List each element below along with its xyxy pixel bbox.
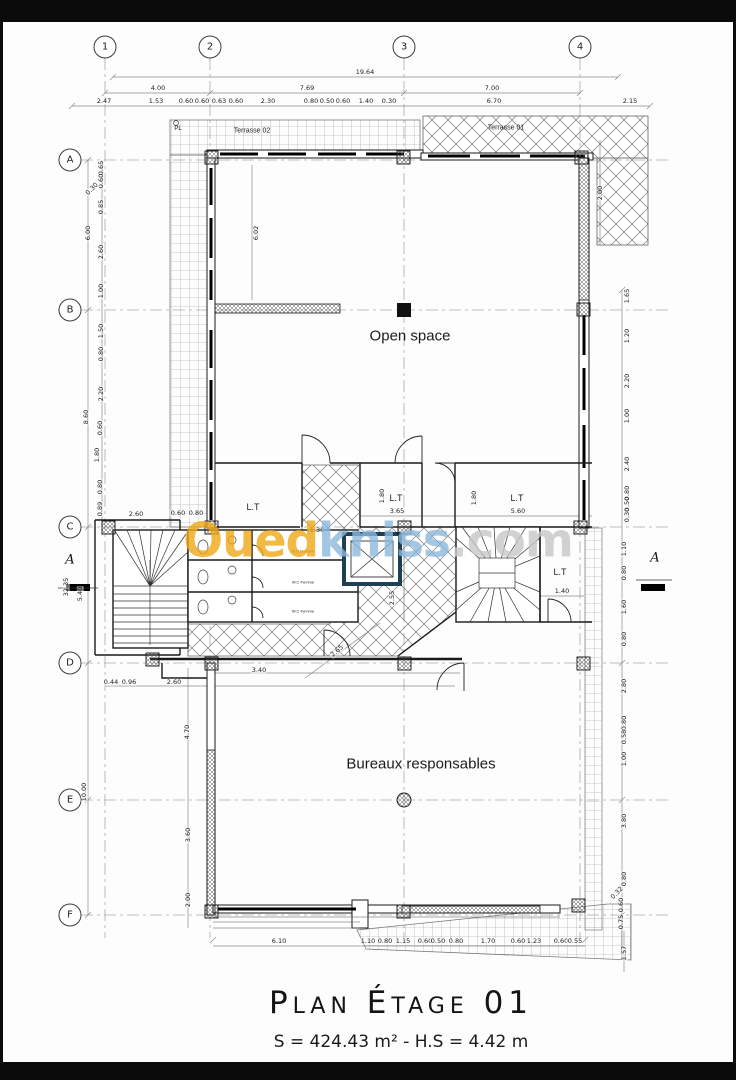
watermark-part1: Oued [183,514,318,569]
plan-subtitle: S = 424.43 m² - H.S = 4.42 m [274,1032,529,1052]
grid-axes [58,58,668,938]
watermark-part2: kniss [318,514,450,569]
left-frame-edge [0,0,3,1080]
plan-title: Plan Étage 01 [269,985,533,1021]
watermark: Ouedkniss.com [183,514,573,569]
bottom-frame-bar [0,1062,736,1080]
drawing-sheet: 1234ABCDEF 19.644.007.697.002.471.530.60… [0,0,736,1080]
watermark-part3: .com [450,514,573,569]
top-frame-bar [0,0,736,22]
